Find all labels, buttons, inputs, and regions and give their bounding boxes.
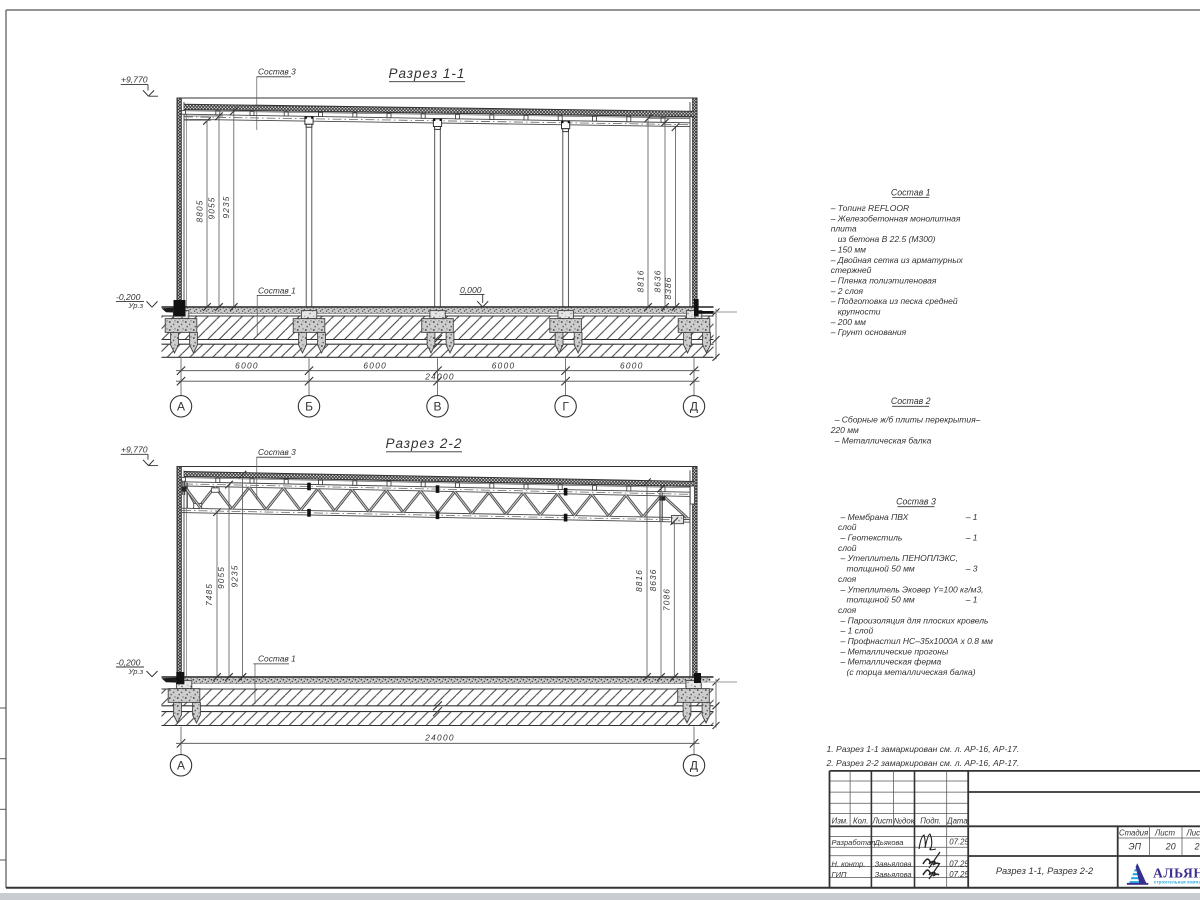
svg-text:6000: 6000 [363, 361, 387, 371]
svg-text:Разрез 1-1, Разрез 2-2: Разрез 1-1, Разрез 2-2 [996, 866, 1094, 876]
svg-text:Состав 2: Состав 2 [891, 396, 931, 406]
svg-text:– Металлические прогоны: – Металлические прогоны [840, 646, 949, 656]
svg-text:А: А [177, 759, 185, 773]
svg-text:– 200 мм: – 200 мм [830, 317, 866, 327]
svg-text:слоя: слоя [838, 605, 857, 615]
svg-text:Подп.: Подп. [920, 816, 941, 825]
svg-text:6000: 6000 [492, 361, 516, 371]
svg-text:из бетона В 22.5 (М300): из бетона В 22.5 (М300) [838, 234, 936, 244]
svg-text:07.25: 07.25 [949, 870, 969, 879]
svg-text:№док: №док [894, 816, 915, 825]
svg-text:– Металлическая ферма: – Металлическая ферма [840, 657, 942, 667]
svg-text:– Утеплитель ПЕНОПЛЭКС,: – Утеплитель ПЕНОПЛЭКС, [840, 553, 959, 563]
svg-text:толщиной 50 мм: толщиной 50 мм [847, 564, 915, 574]
svg-text:– 3: – 3 [965, 564, 978, 574]
svg-text:– 1 слой: – 1 слой [840, 626, 874, 636]
svg-text:24000: 24000 [424, 371, 455, 381]
svg-text:9055: 9055 [206, 197, 216, 220]
svg-text:Ур.з: Ур.з [128, 301, 144, 310]
svg-text:Разработал: Разработал [832, 838, 876, 847]
svg-text:9235: 9235 [229, 565, 239, 588]
svg-text:– Сборные ж/б плиты перекрытия: – Сборные ж/б плиты перекрытия– [834, 415, 981, 425]
svg-text:слой: слой [838, 522, 857, 532]
svg-text:А: А [177, 400, 185, 414]
svg-text:Разрез 2-2: Разрез 2-2 [386, 436, 463, 451]
svg-text:8386: 8386 [663, 277, 673, 300]
svg-text:0,000: 0,000 [460, 285, 482, 295]
svg-text:Дата: Дата [946, 816, 968, 825]
svg-text:24000: 24000 [424, 732, 455, 742]
svg-text:строительная компания: строительная компания [1154, 879, 1200, 884]
svg-text:– 1: – 1 [965, 533, 978, 543]
svg-text:Изм.: Изм. [832, 816, 849, 825]
svg-text:В: В [433, 400, 441, 414]
svg-text:ГИП: ГИП [832, 870, 847, 879]
svg-text:6000: 6000 [620, 361, 644, 371]
svg-text:220 мм: 220 мм [830, 425, 859, 435]
svg-text:ЭП: ЭП [1129, 842, 1142, 852]
svg-text:– 1: – 1 [965, 512, 978, 522]
svg-text:-0,200: -0,200 [116, 658, 141, 668]
svg-text:Состав 1: Состав 1 [258, 654, 296, 664]
svg-text:Лист: Лист [871, 816, 893, 825]
svg-text:Д: Д [690, 759, 698, 773]
svg-text:6000: 6000 [235, 361, 259, 371]
svg-text:– Мембрана ПВХ: – Мембрана ПВХ [840, 512, 909, 522]
svg-text:(с торца металлическая балка): (с торца металлическая балка) [847, 667, 976, 677]
svg-text:8636: 8636 [652, 270, 662, 293]
svg-text:Б: Б [305, 400, 313, 414]
svg-text:07.25: 07.25 [949, 859, 969, 868]
svg-text:8636: 8636 [648, 569, 658, 592]
svg-text:Состав 3: Состав 3 [258, 67, 296, 77]
svg-text:– Железобетонная монолитная: – Железобетонная монолитная [830, 213, 961, 223]
svg-text:– Геотекстиль: – Геотекстиль [840, 533, 903, 543]
svg-text:Разрез 1-1: Разрез 1-1 [389, 66, 466, 81]
svg-text:Д: Д [690, 400, 698, 414]
svg-text:– Двойная сетка из арматурных: – Двойная сетка из арматурных [830, 255, 964, 265]
svg-text:9055: 9055 [216, 566, 226, 589]
svg-text:Лист: Лист [1185, 828, 1200, 837]
svg-text:+9,770: +9,770 [121, 75, 148, 85]
svg-text:Дьякова: Дьякова [874, 838, 904, 847]
svg-text:– Пленка полиэтиленовая: – Пленка полиэтиленовая [830, 276, 937, 286]
svg-text:Лист: Лист [1154, 828, 1176, 837]
svg-text:20: 20 [1165, 842, 1176, 852]
svg-text:2. Разрез 2-2 замаркирован см.: 2. Разрез 2-2 замаркирован см. л. АР-16,… [826, 758, 1020, 768]
svg-text:– Пароизоляция для плоских кро: – Пароизоляция для плоских кровель [840, 615, 989, 625]
svg-text:– Подготовка из песка средней: – Подготовка из песка средней [830, 296, 958, 306]
svg-text:Кол.: Кол. [853, 816, 868, 825]
svg-text:толщиной 50 мм: толщиной 50 мм [847, 595, 915, 605]
svg-text:слоя: слоя [838, 574, 857, 584]
svg-text:крупности: крупности [838, 307, 881, 317]
svg-text:– Грунт основания: – Грунт основания [830, 327, 907, 337]
svg-text:Ур.з: Ур.з [128, 667, 144, 676]
svg-text:Состав 3: Состав 3 [896, 496, 936, 506]
svg-text:+9,770: +9,770 [121, 444, 148, 454]
svg-text:9235: 9235 [221, 196, 231, 219]
svg-text:7485: 7485 [204, 583, 214, 606]
svg-text:Состав 3: Состав 3 [258, 447, 296, 457]
svg-text:8816: 8816 [634, 569, 644, 592]
svg-text:– Топинг REFLOOR: – Топинг REFLOOR [830, 203, 909, 213]
svg-text:– 1: – 1 [965, 595, 978, 605]
svg-text:Н. контр.: Н. контр. [832, 860, 866, 869]
svg-text:– 150 мм: – 150 мм [830, 244, 866, 254]
svg-text:7086: 7086 [662, 588, 672, 611]
svg-text:– Утеплитель Эковер Y=100 кг/м: – Утеплитель Эковер Y=100 кг/м3, [840, 584, 984, 594]
svg-text:Завьялова: Завьялова [875, 860, 912, 869]
svg-text:07.25: 07.25 [949, 838, 969, 847]
svg-text:Состав 1: Состав 1 [891, 187, 931, 197]
svg-text:слой: слой [838, 543, 857, 553]
svg-text:плита: плита [831, 224, 857, 234]
svg-text:8816: 8816 [635, 270, 645, 293]
svg-text:Состав 1: Состав 1 [258, 285, 296, 295]
svg-text:– Металлическая балка: – Металлическая балка [834, 436, 932, 446]
svg-text:Стадия: Стадия [1119, 828, 1149, 837]
svg-text:Г: Г [562, 400, 569, 414]
svg-text:– 2 слоя: – 2 слоя [830, 286, 864, 296]
svg-text:стержней: стержней [831, 265, 872, 275]
svg-text:АЛЬЯНС: АЛЬЯНС [1153, 865, 1200, 880]
svg-text:8805: 8805 [194, 200, 204, 223]
svg-text:Завьялова: Завьялова [875, 870, 912, 879]
svg-text:– Профнастил НС–35х1000А х 0.8: – Профнастил НС–35х1000А х 0.8 мм [840, 636, 994, 646]
svg-text:1. Разрез 1-1 замаркирован см.: 1. Разрез 1-1 замаркирован см. л. АР-16,… [827, 744, 1020, 754]
svg-text:20: 20 [1194, 842, 1200, 852]
